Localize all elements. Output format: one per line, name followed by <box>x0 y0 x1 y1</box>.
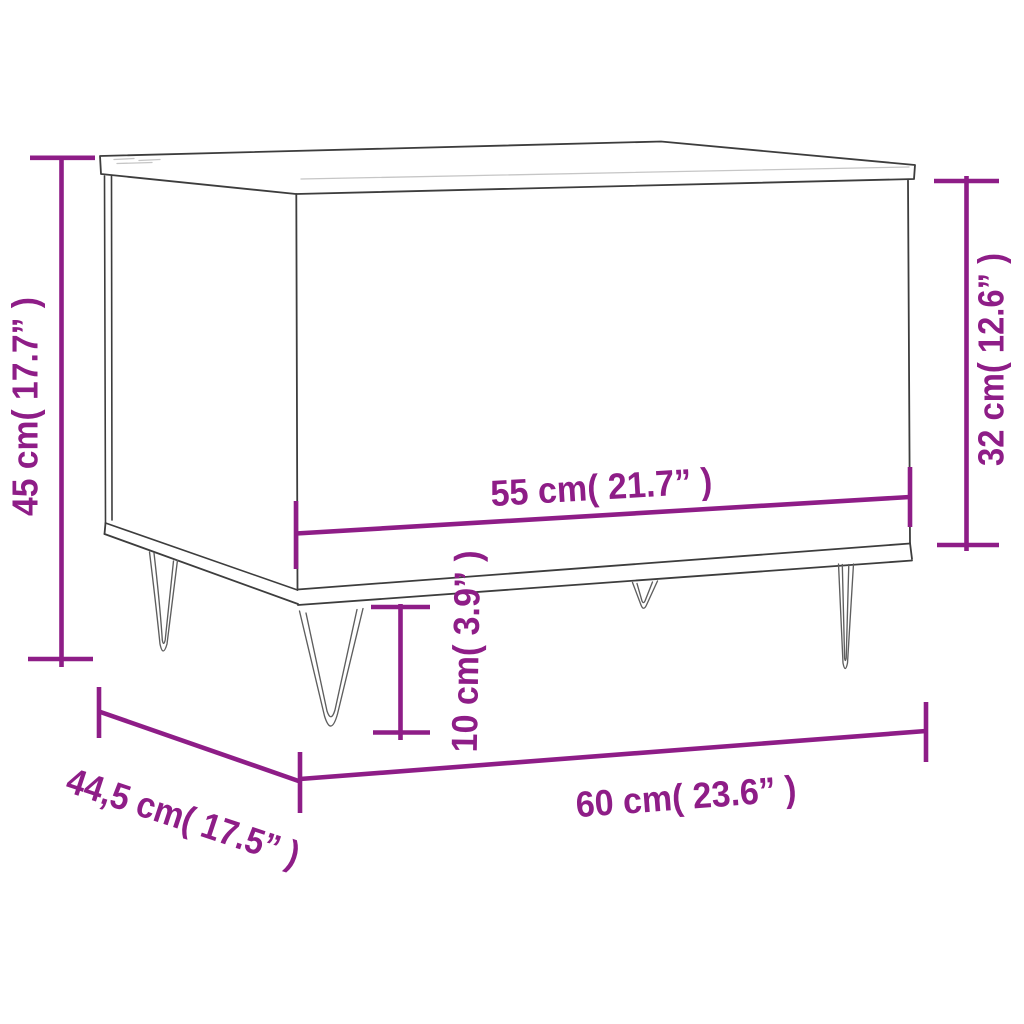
svg-text:32 cm( 12.6” ): 32 cm( 12.6” ) <box>971 253 1012 466</box>
svg-text:45 cm( 17.7” ): 45 cm( 17.7” ) <box>5 297 46 516</box>
svg-text:10 cm( 3.9” ): 10 cm( 3.9” ) <box>444 550 489 753</box>
